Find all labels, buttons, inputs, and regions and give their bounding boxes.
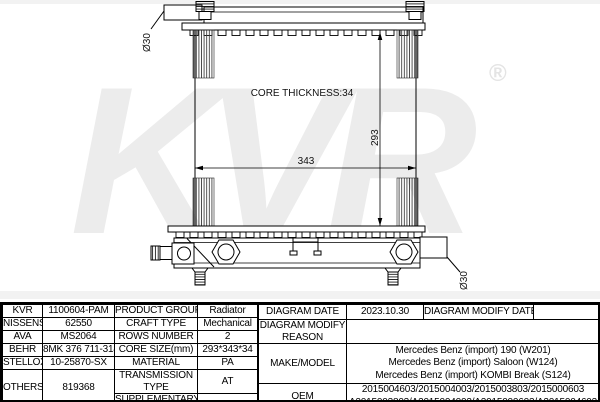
core-thickness-label: CORE THICKNESS:34 [251,88,354,99]
core-fins [193,30,418,226]
code-cell: 8MK 376 711-314 [43,344,115,357]
diagram-modify-date-value [534,305,600,320]
bottom-right-outlet [420,237,447,258]
property-cell: SUPPLEMENTARY [115,394,198,402]
code-cell: 819368 [43,370,115,402]
height-dimension-label: 293 [370,129,381,146]
bottom-left-outlet [151,243,194,264]
bottom-view [151,226,460,285]
property-cell: TRANSMISSION TYPE [115,370,198,394]
width-dimension-label: 343 [298,156,315,167]
oem-value: 2015004603/2015004003/2015003803/2015000… [347,384,600,402]
property-cell: CRAFT TYPE [115,318,198,331]
bottom-flange [168,226,425,232]
oem-line: A2015003803/A2015004003/A2015000603/A201… [347,397,599,402]
value-cell: 2 [198,331,258,344]
top-tank-bar [204,7,423,23]
code-cell: 10-25870-SX [43,357,115,370]
make-model-line: Mercedes Benz (import) Saloon (W124) [347,357,599,370]
modify-reason-label: DIAGRAM MODIFY REASON [259,320,347,344]
bottom-mount-tabs [176,232,422,238]
brand-cell: BEHR [3,344,43,357]
brand-cell: OTHERS [3,370,43,402]
property-cell: PRODUCT GROUP [115,305,198,318]
spec-table: KVR 1100604-PAM PRODUCT GROUP Radiator N… [0,302,600,402]
property-cell: MATERIAL [115,357,198,370]
top-view [151,2,425,36]
top-mount-tabs [190,30,422,36]
top-flange [182,23,425,30]
top-inlet-leader-line [151,11,164,29]
filler-cap-right [406,2,424,20]
cross-reference-table: KVR 1100604-PAM PRODUCT GROUP Radiator N… [2,304,258,402]
value-cell [198,394,258,402]
make-model-line: Mercedes Benz (import) 190 (W201) [347,345,599,358]
brand-cell: AVA [3,331,43,344]
property-cell: ROWS NUMBER [115,331,198,344]
mount-stud-right [385,268,401,285]
make-model-value: Mercedes Benz (import) 190 (W201) Merced… [347,344,600,384]
brand-cell: KVR [3,305,43,318]
modify-reason-value [347,320,600,344]
filler-cap-left [196,2,214,20]
top-inlet-diameter-label: Ø30 [142,33,153,52]
value-cell: 293*343*34 [198,344,258,357]
bottom-outlet-leader-line [447,257,460,272]
diagram-modify-date-label: DIAGRAM MODIFY DATE [424,305,534,320]
code-cell: 62550 [43,318,115,331]
code-cell: MS2064 [43,331,115,344]
brand-cell: STELLOX [3,357,43,370]
oem-line: 2015004603/2015004003/2015003803/2015000… [347,384,599,397]
value-cell: PA [198,357,258,370]
page: KVR ® [0,0,600,402]
make-model-label: MAKE/MODEL [259,344,347,384]
make-model-line: Mercedes Benz (import) KOMBI Break (S124… [347,370,599,383]
bottom-outlet-diameter-label: Ø30 [459,271,470,290]
value-cell: AT [198,370,258,394]
radiator-drawing-area: KVR ® [0,0,600,300]
value-cell: Mechanical [198,318,258,331]
diagram-date-label: DIAGRAM DATE [259,305,347,320]
mount-stud-left [192,268,208,285]
front-view [193,30,418,226]
property-cell: CORE SIZE(mm) [115,344,198,357]
code-cell: 1100604-PAM [43,305,115,318]
radiator-diagram: CORE THICKNESS:34 343 293 Ø30 Ø30 [0,0,600,300]
value-cell: Radiator [198,305,258,318]
diagram-info-table: DIAGRAM DATE 2023.10.30 DIAGRAM MODIFY D… [258,304,600,402]
diagram-date-value: 2023.10.30 [347,305,424,320]
oem-label: OEM [259,384,347,402]
brand-cell: NISSENS [3,318,43,331]
